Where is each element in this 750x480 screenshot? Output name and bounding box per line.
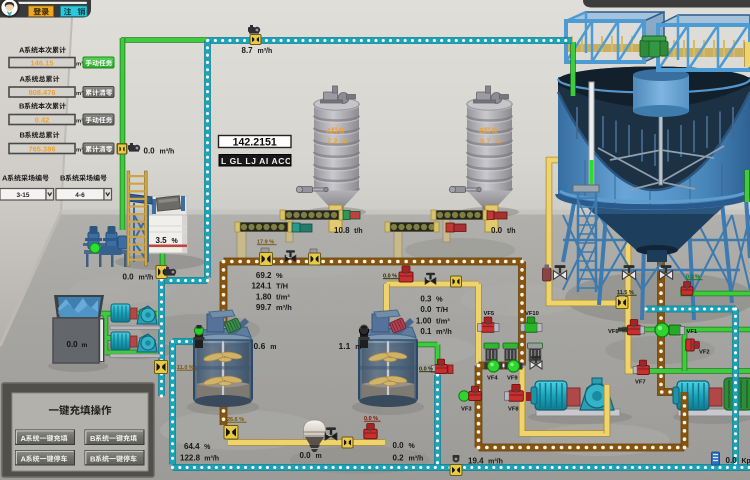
svg-text:m³: m³	[76, 61, 83, 68]
svg-text:m³/h: m³/h	[159, 149, 174, 156]
svg-text:0.0: 0.0	[300, 451, 312, 460]
svg-text:m³/h: m³/h	[488, 459, 503, 466]
svg-text:t/m³: t/m³	[436, 317, 450, 326]
svg-text:VF5: VF5	[484, 311, 495, 317]
svg-text:0.42: 0.42	[35, 115, 50, 124]
svg-text:122.8: 122.8	[180, 454, 201, 463]
svg-text:0.0: 0.0	[420, 305, 432, 314]
svg-text:0.0: 0.0	[123, 273, 135, 282]
svg-text:m³/h: m³/h	[138, 275, 153, 282]
svg-text:B: B	[479, 126, 485, 135]
svg-text:A: A	[2, 174, 8, 183]
svg-text:3.5: 3.5	[156, 236, 168, 245]
svg-text:99.7: 99.7	[256, 303, 272, 312]
svg-text:m³/h: m³/h	[276, 303, 292, 312]
svg-text:0.3: 0.3	[420, 295, 432, 304]
svg-text:10.8: 10.8	[334, 226, 350, 235]
svg-text:m: m	[270, 344, 276, 351]
svg-text:VF3: VF3	[461, 407, 472, 413]
svg-text:%: %	[276, 271, 283, 280]
svg-text:m³/h: m³/h	[436, 327, 452, 336]
svg-text:VF2: VF2	[699, 350, 710, 356]
svg-text:B: B	[90, 434, 96, 443]
svg-text:Kp: Kp	[741, 458, 750, 465]
svg-text:VF10: VF10	[525, 311, 539, 317]
svg-text:0.0: 0.0	[491, 226, 503, 235]
svg-text:t/h: t/h	[354, 228, 363, 235]
svg-text:A: A	[20, 75, 26, 84]
svg-text:146.15: 146.15	[31, 58, 54, 67]
svg-text:124.1: 124.1	[251, 282, 272, 291]
svg-text:142.2151: 142.2151	[233, 136, 277, 148]
svg-text:B: B	[20, 131, 26, 140]
svg-text:m: m	[342, 139, 348, 146]
svg-text:A: A	[21, 434, 27, 443]
svg-text:A: A	[21, 454, 27, 463]
svg-text:64.4: 64.4	[184, 442, 200, 451]
svg-text:B: B	[19, 102, 25, 111]
svg-text:4-6: 4-6	[75, 192, 85, 199]
svg-text:t/h: t/h	[507, 228, 516, 235]
svg-text:0.0: 0.0	[726, 456, 738, 465]
svg-text:8.7: 8.7	[242, 46, 254, 55]
svg-text:1.80: 1.80	[256, 293, 272, 302]
svg-text:m³: m³	[76, 90, 83, 97]
svg-text:m³/h: m³/h	[408, 456, 423, 463]
svg-text:%: %	[436, 295, 443, 304]
svg-text:m³/h: m³/h	[204, 456, 219, 463]
svg-text:B: B	[60, 174, 66, 183]
svg-text:A: A	[19, 46, 25, 55]
svg-text:VF1: VF1	[687, 329, 698, 335]
svg-text:1.1: 1.1	[339, 341, 351, 351]
svg-text:t/m³: t/m³	[276, 293, 290, 302]
svg-text:m: m	[495, 139, 501, 146]
svg-text:0.1: 0.1	[420, 327, 432, 336]
svg-text:765.386: 765.386	[28, 144, 55, 153]
svg-text:m³: m³	[76, 147, 83, 154]
svg-text:m³/h: m³/h	[257, 48, 272, 55]
svg-text:0.6: 0.6	[254, 341, 266, 351]
svg-text:m: m	[355, 344, 361, 351]
svg-text:0.2: 0.2	[393, 454, 405, 463]
svg-text:VF9: VF9	[507, 376, 518, 382]
svg-text:%: %	[204, 444, 211, 451]
svg-text:808.476: 808.476	[28, 88, 55, 97]
svg-text:L GL LJ AI ACC L: L GL LJ AI ACC L	[221, 156, 301, 166]
svg-text:1.00: 1.00	[416, 317, 432, 326]
svg-text:0.0: 0.0	[144, 147, 156, 156]
svg-text:VF4: VF4	[487, 376, 498, 382]
svg-text:m: m	[82, 342, 88, 349]
svg-text:T/H: T/H	[436, 305, 448, 314]
svg-text:VF8: VF8	[508, 407, 519, 413]
svg-text:%: %	[172, 238, 179, 245]
svg-text:69.2: 69.2	[256, 271, 272, 280]
svg-text:m: m	[315, 453, 321, 460]
svg-text:3-15: 3-15	[16, 192, 29, 199]
svg-text:T/H: T/H	[276, 282, 288, 291]
svg-text:%: %	[408, 443, 415, 450]
svg-text:9.7: 9.7	[480, 137, 490, 146]
svg-text:VF6: VF6	[608, 329, 619, 335]
svg-text:m³: m³	[76, 118, 83, 125]
svg-text:0.0: 0.0	[67, 340, 79, 349]
svg-text:VF7: VF7	[635, 380, 646, 386]
svg-text:A: A	[326, 126, 332, 135]
svg-text:19.4: 19.4	[468, 457, 484, 466]
svg-text:B: B	[90, 454, 96, 463]
svg-text:0.0: 0.0	[393, 441, 405, 450]
svg-text:7.2: 7.2	[327, 137, 337, 146]
